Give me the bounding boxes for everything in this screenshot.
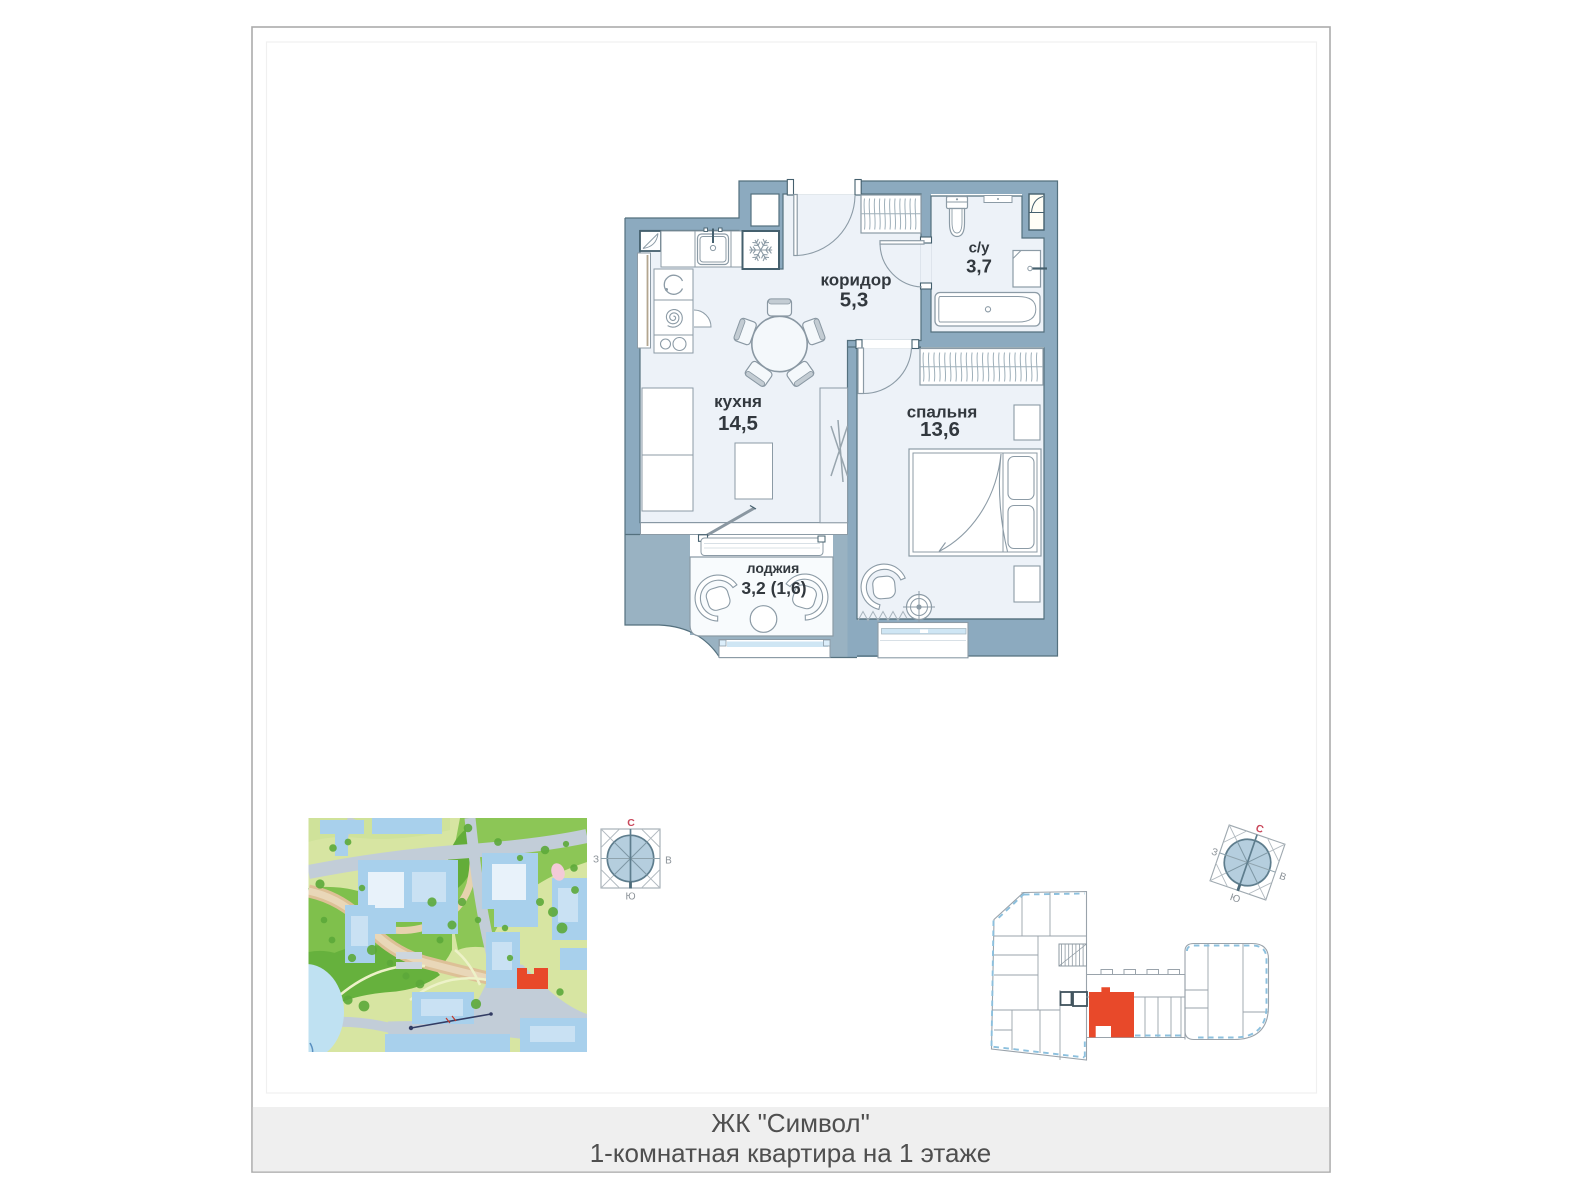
svg-text:3,7: 3,7	[966, 256, 992, 277]
svg-text:с/у: с/у	[969, 240, 991, 257]
svg-text:ЖК "Символ": ЖК "Символ"	[711, 1108, 870, 1138]
svg-text:З: З	[593, 855, 599, 866]
svg-text:кухня: кухня	[714, 392, 762, 411]
svg-text:1-комнатная квартира на 1 этаж: 1-комнатная квартира на 1 этаже	[590, 1138, 992, 1168]
svg-text:Ю: Ю	[625, 892, 635, 903]
svg-text:5,3: 5,3	[840, 289, 869, 312]
svg-text:коридор: коридор	[820, 271, 891, 290]
svg-text:3,2 (1,6): 3,2 (1,6)	[741, 578, 806, 598]
svg-text:лоджия: лоджия	[747, 560, 800, 576]
svg-text:13,6: 13,6	[920, 418, 960, 441]
svg-text:14,5: 14,5	[718, 412, 758, 435]
svg-text:С: С	[627, 817, 635, 829]
svg-text:В: В	[665, 856, 672, 867]
